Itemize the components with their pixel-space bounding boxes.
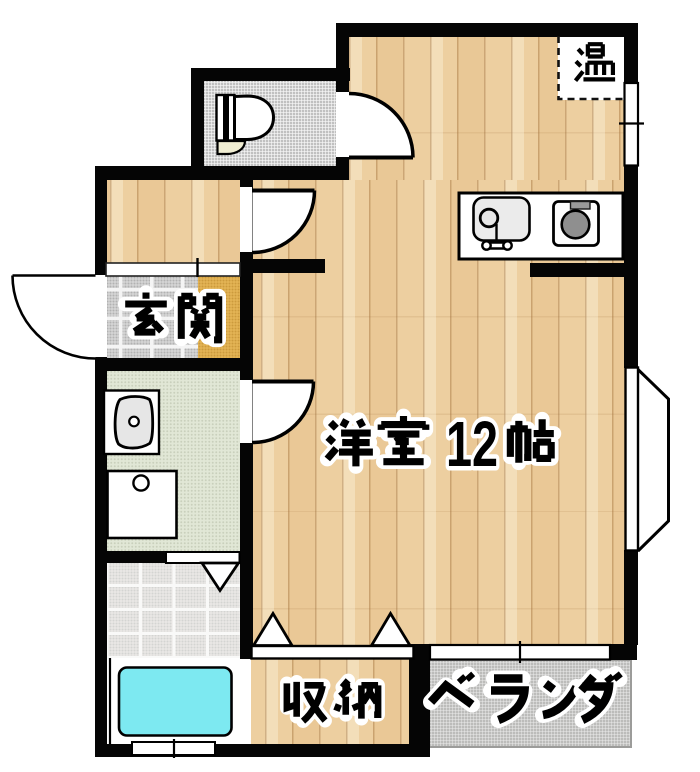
svg-text:12: 12 [446, 408, 498, 480]
